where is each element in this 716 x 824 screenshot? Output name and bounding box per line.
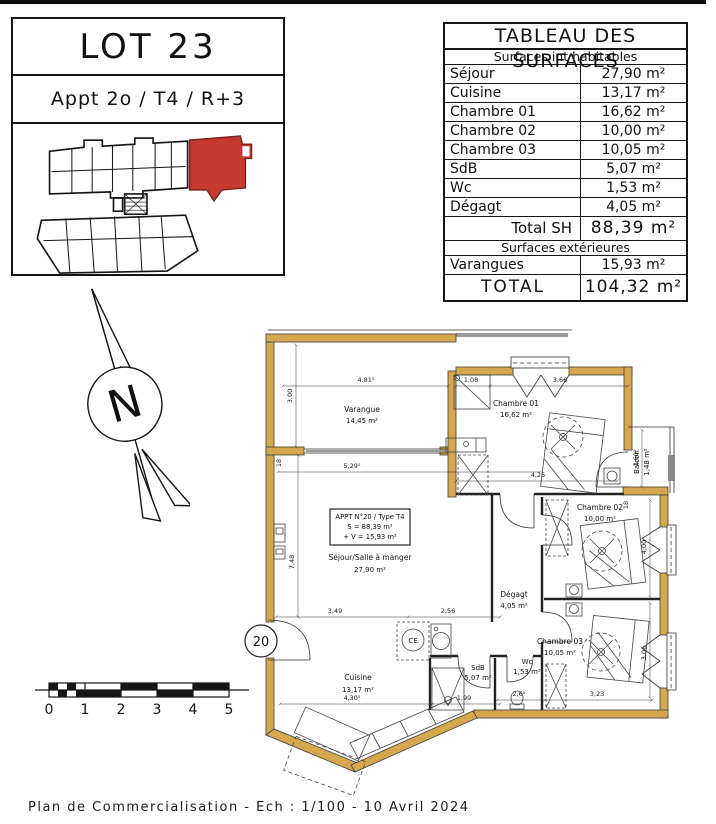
row-value: 5,07 m²	[581, 160, 686, 178]
scan-artifact-bar	[0, 0, 706, 4]
total-sh-value: 88,39 m²	[581, 217, 686, 240]
dim-text: 4,30⁵	[343, 694, 360, 702]
floor-plan: 20 CE 4,81⁵ 3,00 18 1,08 3,66 4,25 5,29⁵…	[235, 318, 716, 814]
row-value: 1,53 m²	[581, 179, 686, 197]
furniture	[274, 375, 649, 796]
row-value: 4,05 m²	[581, 198, 686, 216]
exterior-walls	[266, 334, 668, 772]
row-value: 27,90 m²	[581, 65, 686, 83]
dim-text: 3,00	[286, 389, 294, 403]
row-label: Varangues	[445, 256, 581, 274]
site-plan-drawing	[13, 124, 283, 274]
lot-title: LOT 23	[13, 19, 283, 76]
interior-surfaces-header: Surfaces int habitables	[445, 50, 686, 65]
dim-text: 2,6⁵	[513, 690, 526, 698]
room-area: 10,00 m²	[584, 515, 616, 523]
dim-text: 1,99	[457, 694, 471, 702]
scale-tick: 4	[189, 702, 198, 718]
apt-box-line: APPT N°20 / Type T4	[335, 513, 404, 521]
room-name: Wc	[522, 658, 533, 666]
dim-text: 4,25	[531, 471, 545, 479]
room-name: Varangue	[344, 405, 380, 414]
row-label: Dégagt	[445, 198, 581, 216]
dim-text: 3,66	[553, 376, 567, 384]
table-row: Dégagt4,05 m²	[445, 198, 686, 217]
scale-tick: 1	[81, 702, 90, 718]
room-name: Chambre 02	[577, 503, 623, 512]
exterior-surfaces-header: Surfaces extérieures	[445, 241, 686, 256]
table-row: Varangues15,93 m²	[445, 256, 686, 275]
table-row: Cuisine13,17 m²	[445, 84, 686, 103]
grand-total-row: TOTAL104,32 m²	[445, 275, 686, 300]
room-area: 14,45 m²	[346, 417, 378, 425]
dim-text: 4,00	[640, 540, 648, 554]
dim-text: 3,23	[590, 690, 604, 698]
row-label: Wc	[445, 179, 581, 197]
row-value: 16,62 m²	[581, 103, 686, 121]
appt-subtitle: Appt 2o / T4 / R+3	[13, 76, 283, 124]
table-row: SdB5,07 m²	[445, 160, 686, 179]
surfaces-table: TABLEAU DES SURFACES Surfaces int habita…	[443, 22, 688, 302]
row-label: Cuisine	[445, 84, 581, 102]
total-sh-label: Total SH	[445, 217, 581, 240]
room-name: Séjour/Salle à manger	[328, 553, 412, 562]
apt-box-line: + V = 15,93 m²	[343, 533, 397, 541]
room-name: Balcon	[633, 450, 641, 474]
site-key-plan	[13, 124, 283, 274]
entrance-number: 20	[253, 635, 270, 650]
row-label: SdB	[445, 160, 581, 178]
table-row: Chambre 0210,00 m²	[445, 122, 686, 141]
scale-tick: 5	[225, 702, 234, 718]
scale-tick: 0	[45, 702, 54, 718]
scale-tick: 3	[153, 702, 162, 718]
grand-total-value: 104,32 m²	[581, 275, 686, 300]
dim-text: 18	[275, 459, 283, 467]
grand-total-label: TOTAL	[445, 275, 581, 300]
north-arrow: N	[40, 282, 190, 530]
room-name: Chambre 01	[493, 399, 539, 408]
dim-text: 3,49	[328, 607, 342, 615]
dim-text: 18	[622, 501, 630, 509]
room-name: SdB	[471, 664, 485, 672]
footer-caption: Plan de Commercialisation - Ech : 1/100 …	[28, 800, 470, 815]
entrance-tag: 20	[245, 625, 277, 657]
apt-box-line: S = 88,39 m²	[347, 523, 393, 531]
table-row: Chambre 0116,62 m²	[445, 103, 686, 122]
room-area: 1,48 m²	[643, 448, 651, 476]
room-name: Dégagt	[500, 590, 528, 599]
dim-text: 4,81⁵	[357, 376, 374, 384]
surfaces-table-title: TABLEAU DES SURFACES	[445, 24, 686, 50]
room-area: 10,05 m²	[544, 649, 576, 657]
row-label: Chambre 02	[445, 122, 581, 140]
dim-text: 3,06	[640, 646, 648, 660]
row-label: Séjour	[445, 65, 581, 83]
room-name: Chambre 03	[537, 637, 583, 646]
row-value: 10,00 m²	[581, 122, 686, 140]
row-value: 15,93 m²	[581, 256, 686, 274]
table-row: Séjour27,90 m²	[445, 65, 686, 84]
room-area: 27,90 m²	[354, 566, 386, 574]
apartment-info-box: APPT N°20 / Type T4 S = 88,39 m² + V = 1…	[330, 509, 410, 545]
room-area: 16,62 m²	[500, 411, 532, 419]
room-area: 1,53 m²	[513, 668, 541, 676]
room-area: 4,05 m²	[500, 602, 528, 610]
dim-text: 1,08	[464, 376, 478, 384]
scale-bar: 0 1 2 3 4 5	[35, 672, 250, 718]
scale-tick: 2	[117, 702, 126, 718]
table-row: Chambre 0310,05 m²	[445, 141, 686, 160]
row-label: Chambre 01	[445, 103, 581, 121]
water-heater-label: CE	[408, 637, 417, 645]
total-sh-row: Total SH88,39 m²	[445, 217, 686, 241]
dim-text: 7,48	[288, 555, 296, 569]
dim-text: 5,29⁵	[343, 462, 360, 470]
room-area: 13,17 m²	[342, 686, 374, 694]
lot-header-panel: LOT 23 Appt 2o / T4 / R+3	[11, 17, 285, 276]
room-area: 5,07 m²	[464, 674, 492, 682]
row-value: 13,17 m²	[581, 84, 686, 102]
row-value: 10,05 m²	[581, 141, 686, 159]
table-row: Wc1,53 m²	[445, 179, 686, 198]
dim-text: 2,56	[441, 607, 455, 615]
row-label: Chambre 03	[445, 141, 581, 159]
highlighted-apartment	[190, 136, 252, 201]
room-name: Cuisine	[344, 673, 372, 682]
